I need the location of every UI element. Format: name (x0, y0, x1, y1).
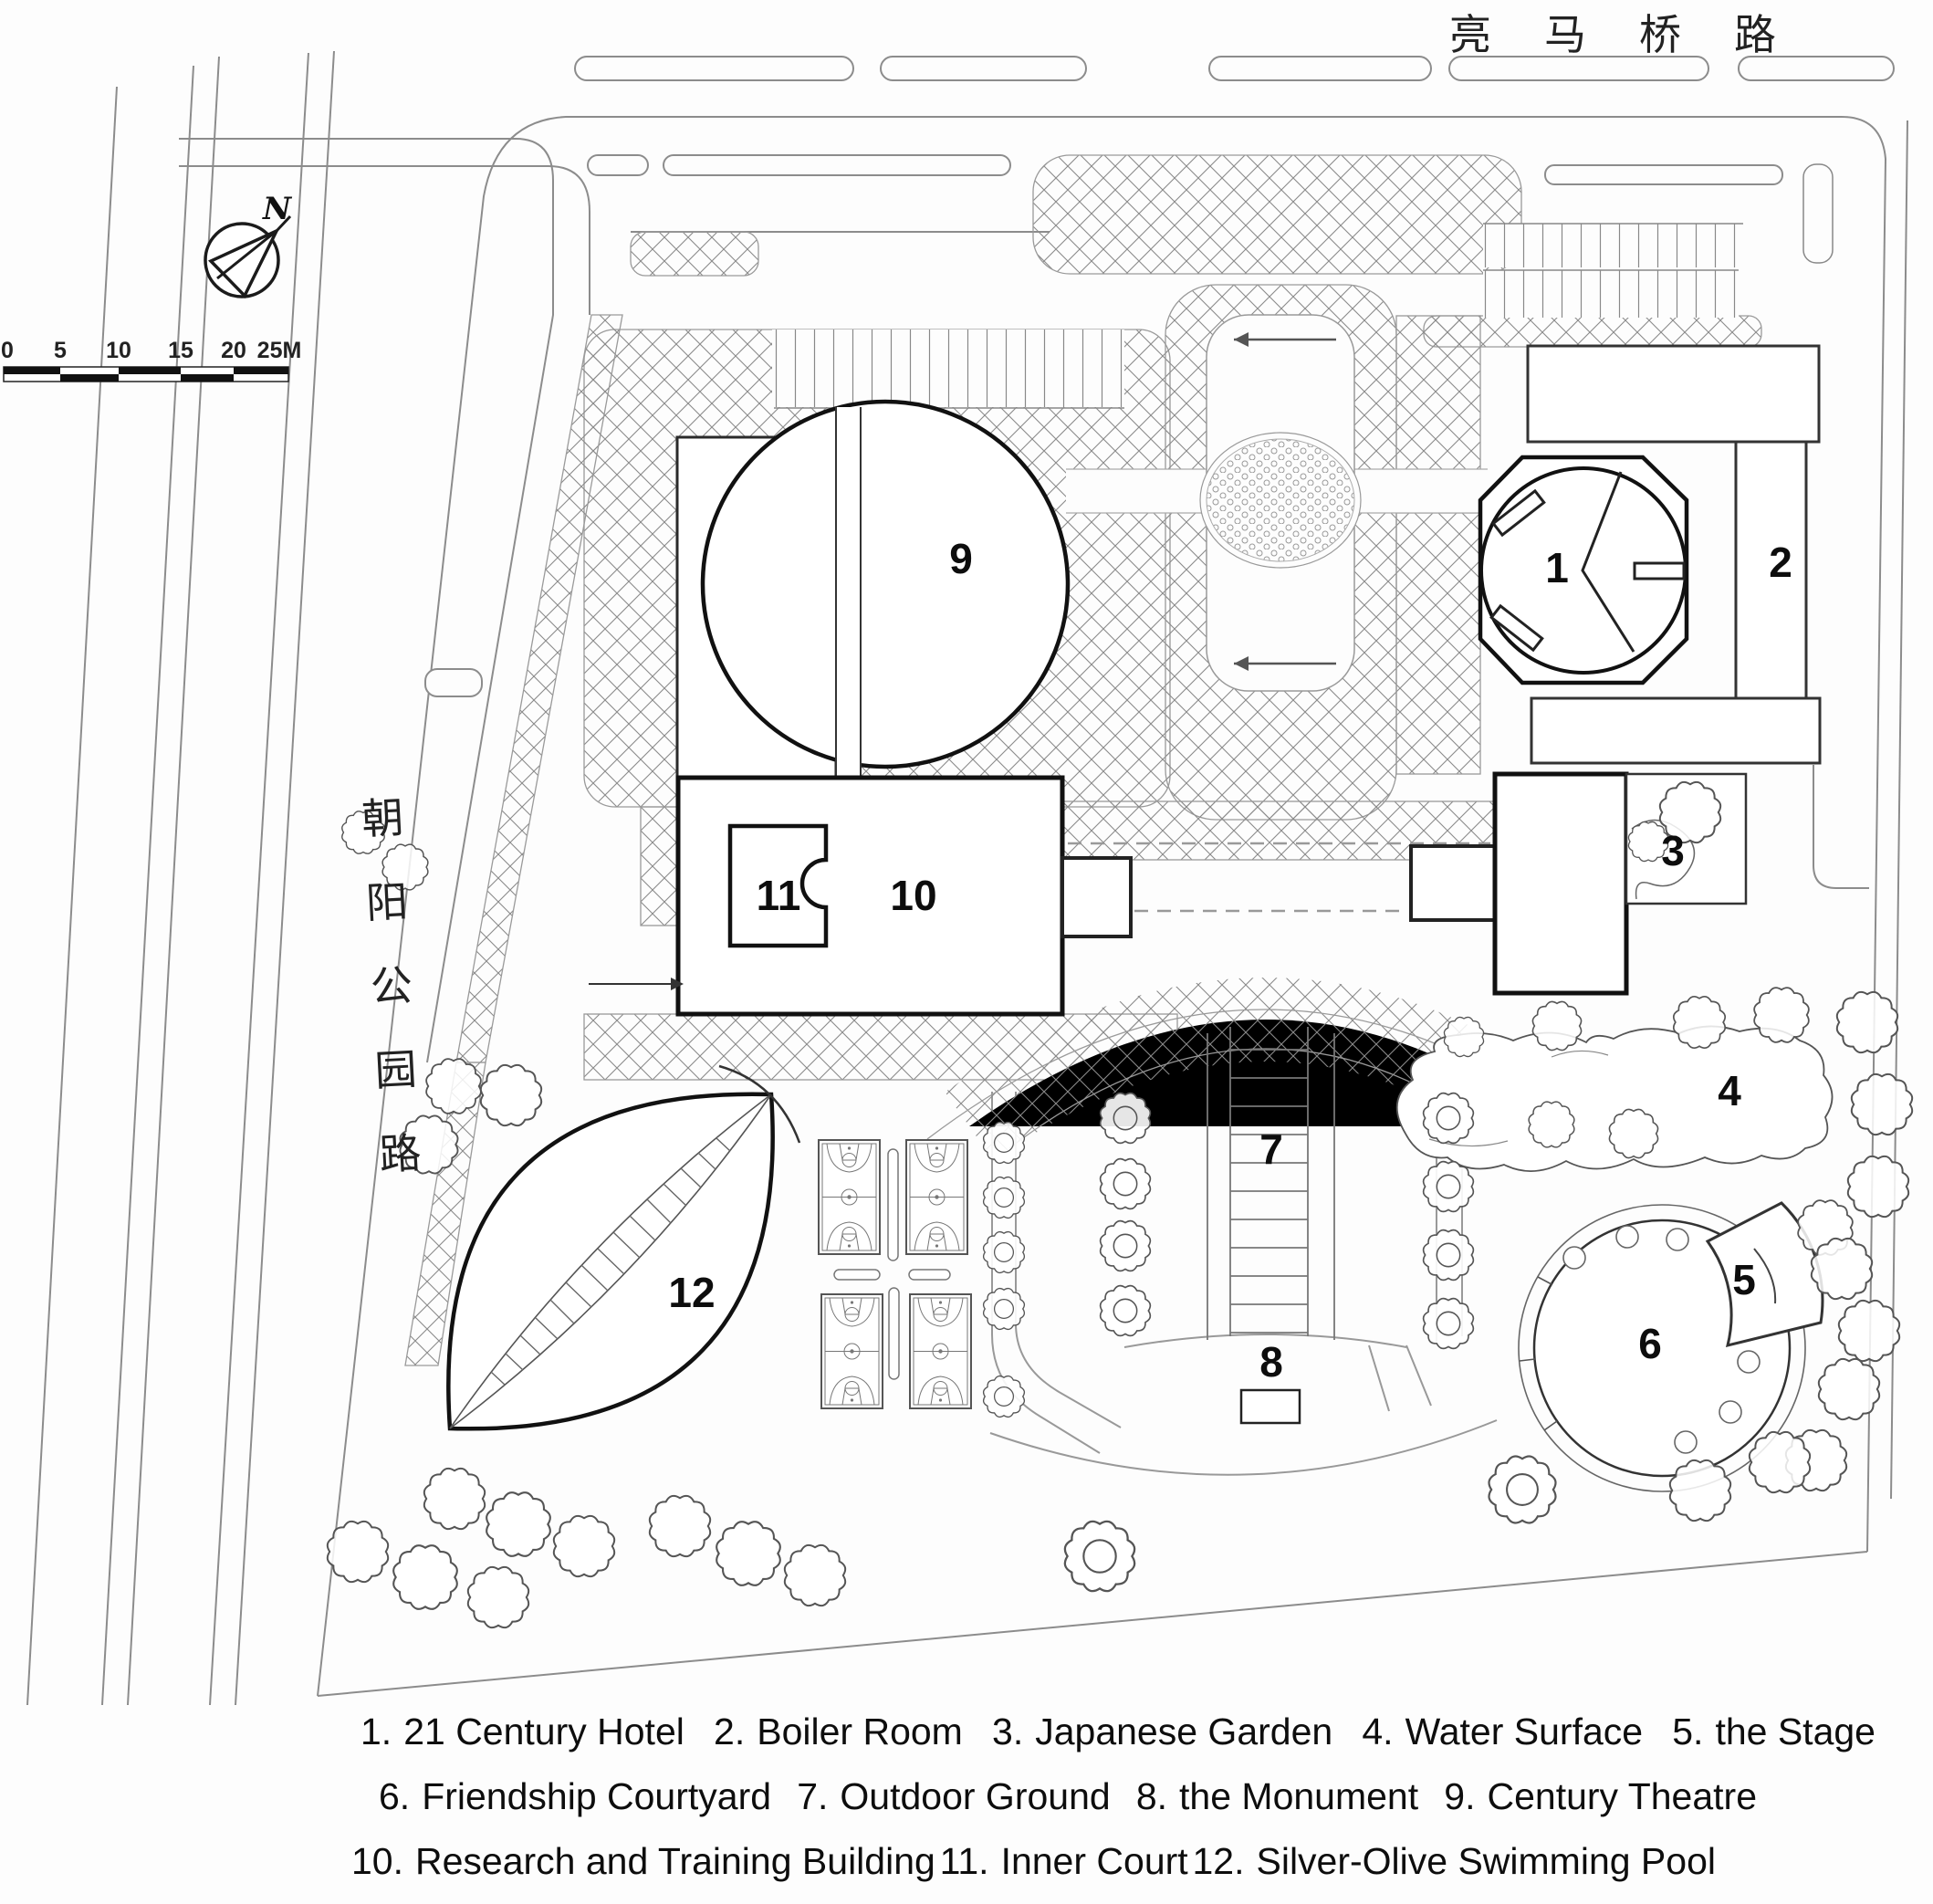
scale-tick: 20 (221, 338, 246, 363)
parking-stalls-north (772, 330, 1124, 408)
plan-label-5: 5 (1732, 1256, 1756, 1303)
legend-item-3: 3.Japanese Garden (992, 1710, 1332, 1753)
legend-item-8: 8.the Monument (1136, 1775, 1418, 1818)
plan-label-8: 8 (1259, 1338, 1283, 1386)
scale-tick: 5 (54, 338, 67, 363)
scale-tick: 25M (257, 338, 302, 363)
basketball-courts (819, 1140, 971, 1408)
parking-stalls-east-row2 (1483, 270, 1739, 318)
scale-tick: 15 (168, 338, 193, 363)
plan-label-10: 10 (890, 872, 936, 919)
legend-item-5: 5.the Stage (1672, 1710, 1876, 1753)
legend-row-2: 6.Friendship Courtyard 7.Outdoor Ground … (379, 1775, 1757, 1818)
legend-item-1: 1.21 Century Hotel (360, 1710, 684, 1753)
plan-label-1: 1 (1545, 544, 1569, 591)
north-compass: N (205, 191, 293, 297)
site-plan-drawing: N 0 5 10 15 20 25M 1 2 3 4 5 6 7 8 9 10 … (0, 0, 1933, 1904)
area-8-monument (1241, 1390, 1300, 1423)
plan-label-4: 4 (1718, 1067, 1741, 1114)
left-road-lines (27, 51, 334, 1705)
hotel-south-wing (1531, 698, 1820, 763)
l-shaped-building (1495, 774, 1626, 993)
entrance-arrow (589, 978, 684, 990)
right-road-outer-line (1891, 120, 1907, 1499)
legend-item-2: 2.Boiler Room (714, 1710, 963, 1753)
plan-label-7: 7 (1259, 1125, 1283, 1173)
plan-label-12: 12 (668, 1269, 715, 1316)
plan-label-3: 3 (1661, 827, 1685, 874)
hotel-north-wing (1528, 346, 1819, 442)
east-link-block (1411, 846, 1497, 920)
legend: 1.21 Century Hotel 2.Boiler Room 3.Japan… (0, 1710, 1933, 1904)
west-link-block (1062, 858, 1131, 936)
roadside-tab (425, 669, 482, 696)
legend-item-9: 9.Century Theatre (1444, 1775, 1757, 1818)
central-garden-court (1200, 315, 1361, 691)
plan-label-6: 6 (1638, 1320, 1662, 1367)
legend-item-6: 6.Friendship Courtyard (379, 1775, 771, 1818)
north-label: N (262, 191, 293, 227)
road-name-liangmaqiao: 亮马桥路 (1449, 2, 1829, 62)
legend-item-4: 4.Water Surface (1362, 1710, 1643, 1753)
plan-label-2: 2 (1769, 539, 1792, 586)
plan-label-11: 11 (757, 872, 801, 919)
dotted-planting-oval (1207, 439, 1354, 561)
legend-item-7: 7.Outdoor Ground (797, 1775, 1111, 1818)
east-access-road (1813, 765, 1869, 888)
legend-item-10: 10.Research and Training Building (351, 1840, 935, 1883)
scale-bar: 0 5 10 15 20 25M (1, 338, 301, 382)
legend-item-11: 11.Inner Court (940, 1840, 1188, 1883)
legend-row-3: 10.Research and Training Building 11.Inn… (351, 1840, 1716, 1883)
legend-item-12: 12.Silver-Olive Swimming Pool (1192, 1840, 1716, 1883)
legend-row-1: 1.21 Century Hotel 2.Boiler Room 3.Japan… (360, 1710, 1876, 1753)
scale-tick: 10 (106, 338, 131, 363)
plan-label-9: 9 (949, 535, 973, 582)
site-plan-page: N 0 5 10 15 20 25M 1 2 3 4 5 6 7 8 9 10 … (0, 0, 1933, 1904)
scale-tick: 0 (1, 338, 14, 363)
